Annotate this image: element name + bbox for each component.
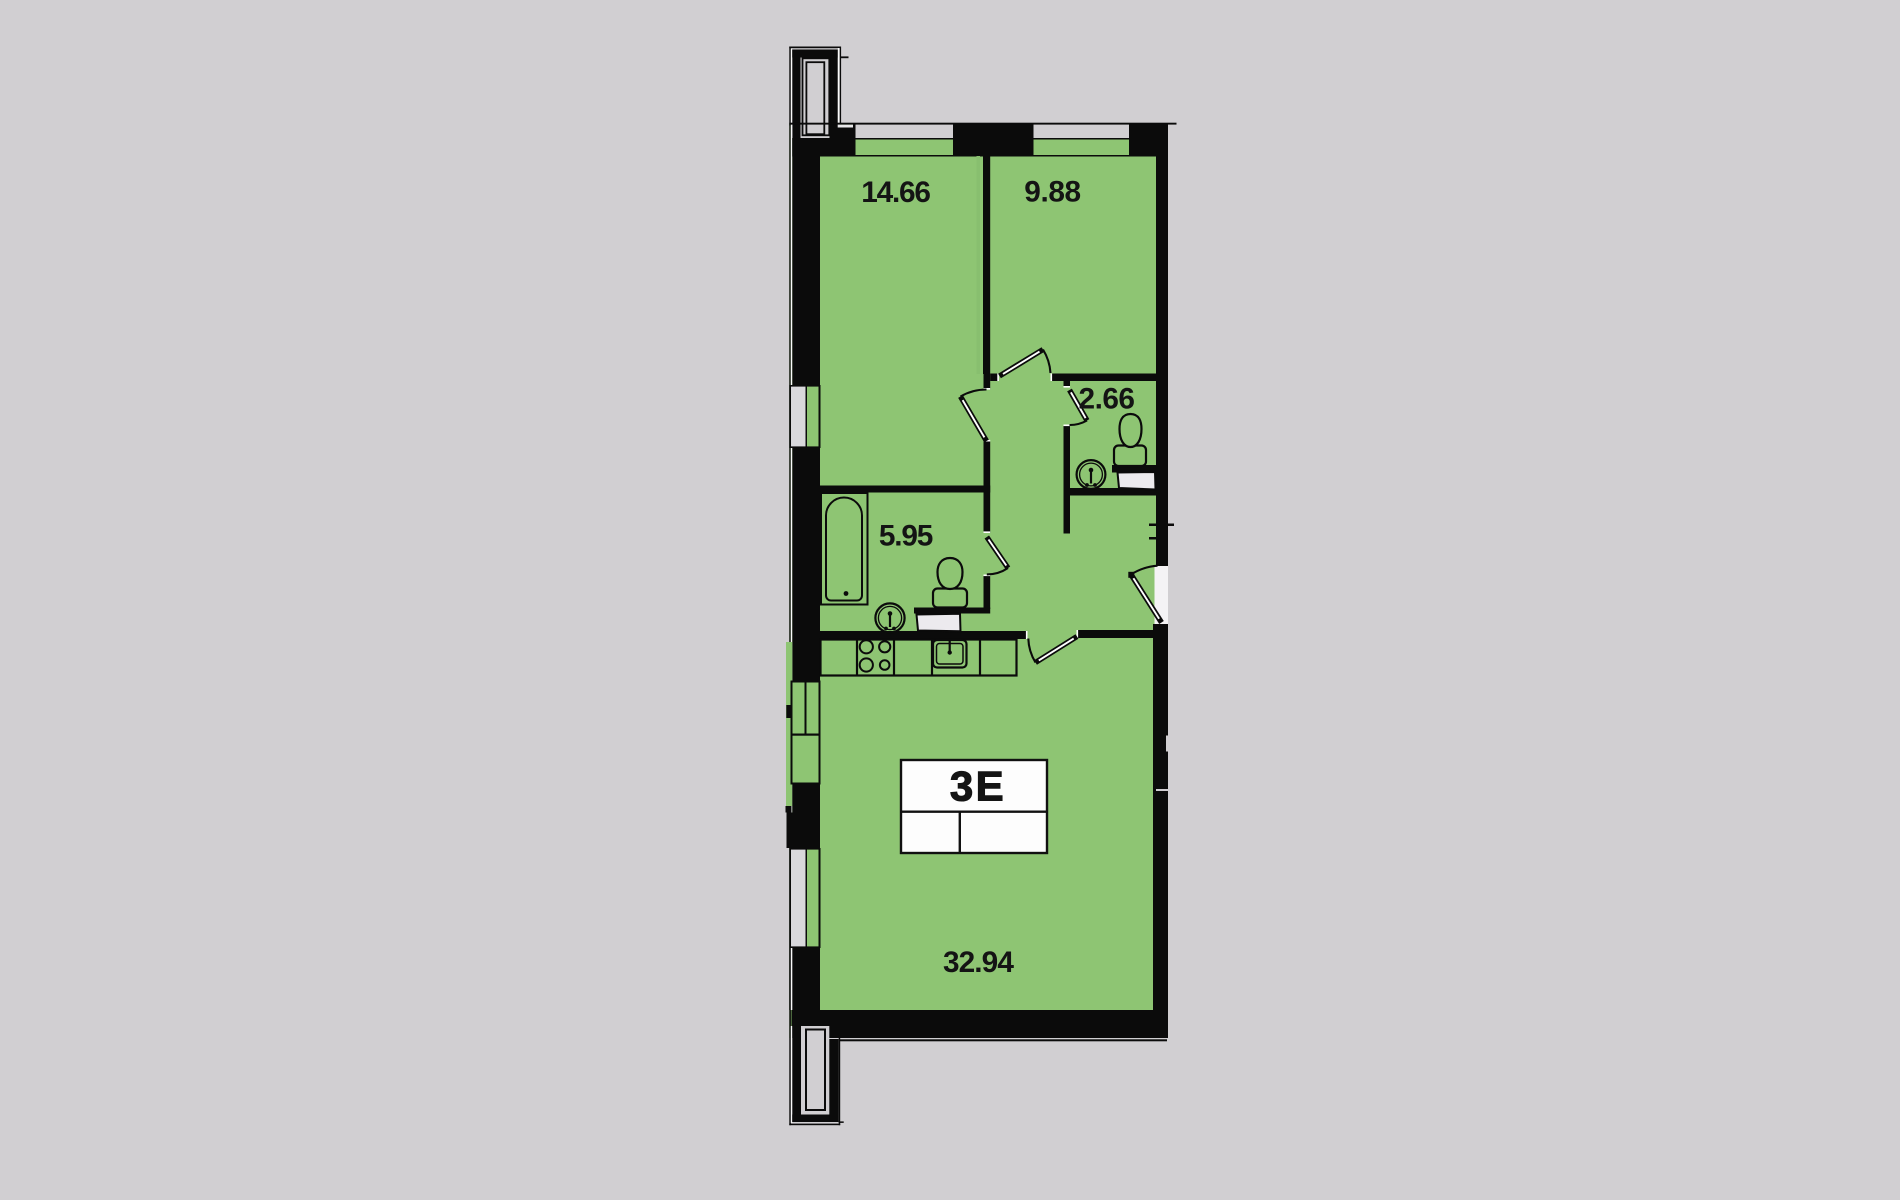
svg-text:32.94: 32.94 [943, 946, 1014, 979]
svg-text:2.66: 2.66 [1079, 383, 1135, 416]
svg-text:3E: 3E [950, 763, 1006, 810]
svg-text:14.66: 14.66 [861, 176, 930, 209]
svg-text:9.88: 9.88 [1024, 176, 1080, 209]
svg-text:5.95: 5.95 [879, 520, 933, 553]
